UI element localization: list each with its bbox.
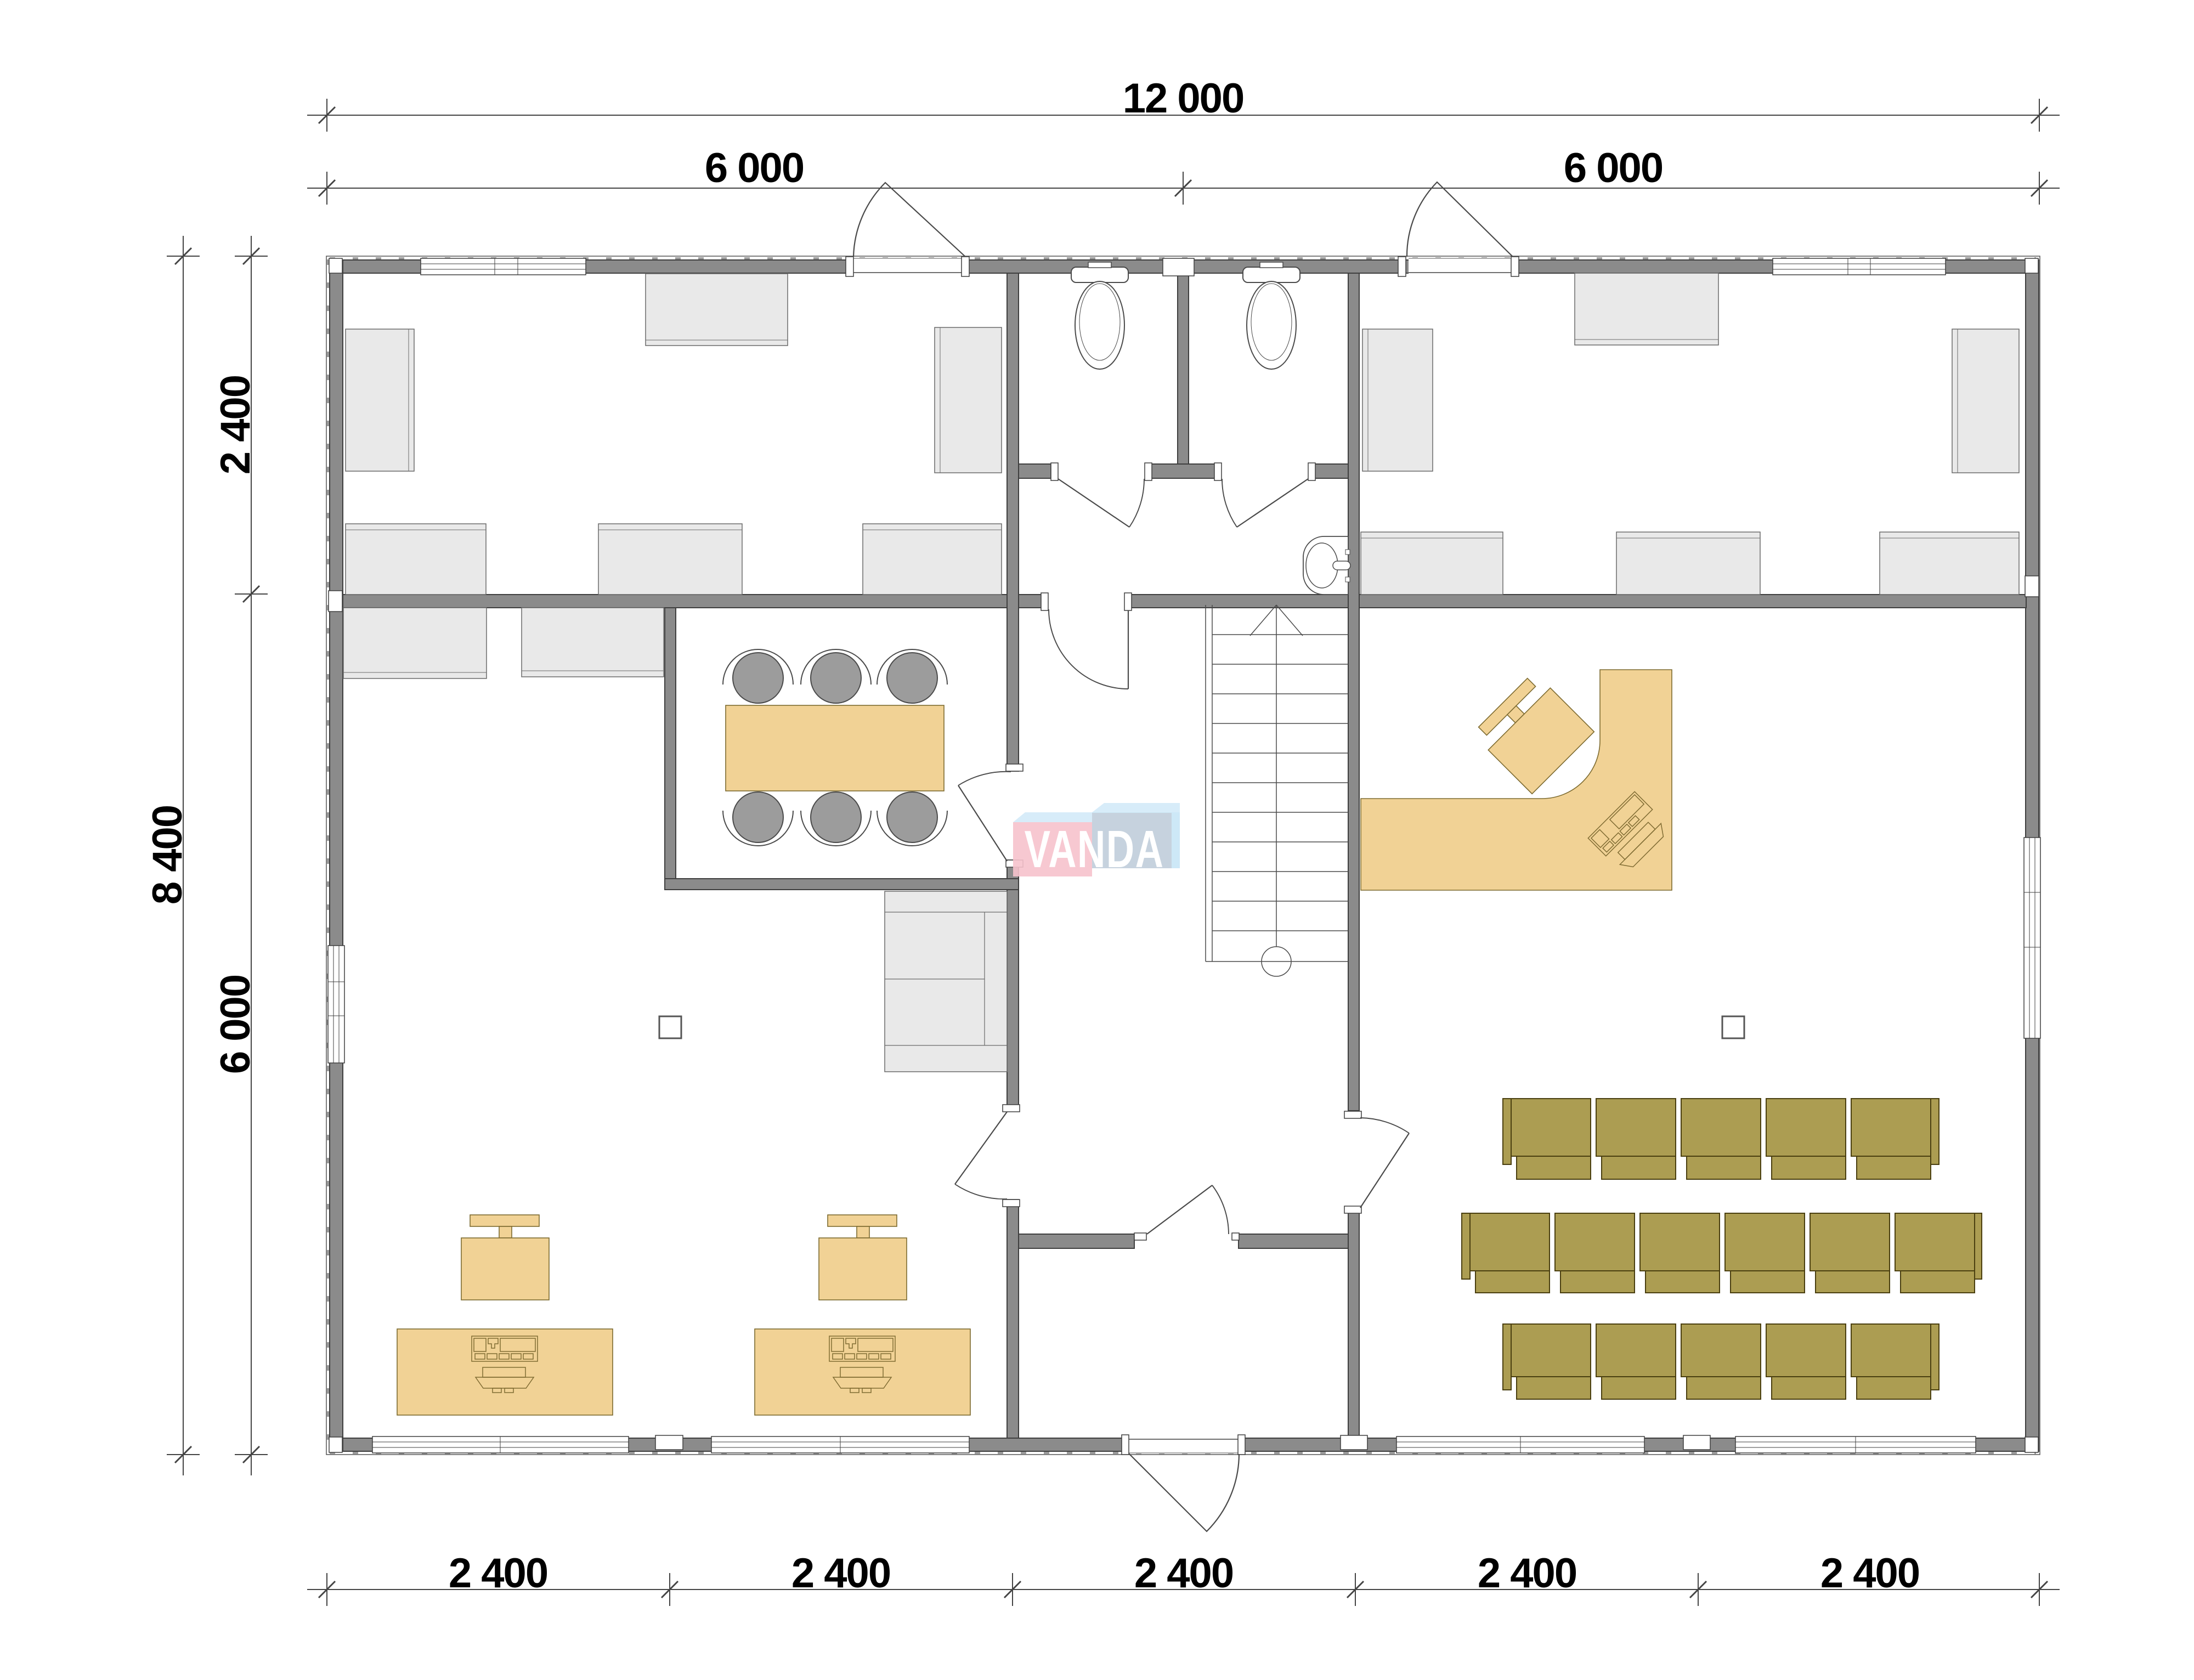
svg-text:6 000: 6 000 [212, 975, 259, 1074]
svg-text:VANDA: VANDA [1025, 820, 1164, 879]
svg-text:2 400: 2 400 [1134, 1550, 1233, 1597]
svg-text:6 000: 6 000 [705, 145, 804, 191]
svg-text:2 400: 2 400 [1478, 1550, 1576, 1597]
svg-text:2 400: 2 400 [212, 376, 259, 474]
svg-text:6 000: 6 000 [1564, 145, 1663, 191]
svg-text:8 400: 8 400 [144, 806, 191, 904]
svg-text:12 000: 12 000 [1123, 75, 1243, 122]
svg-text:2 400: 2 400 [791, 1550, 890, 1597]
svg-text:2 400: 2 400 [449, 1550, 547, 1597]
svg-text:2 400: 2 400 [1820, 1550, 1919, 1597]
